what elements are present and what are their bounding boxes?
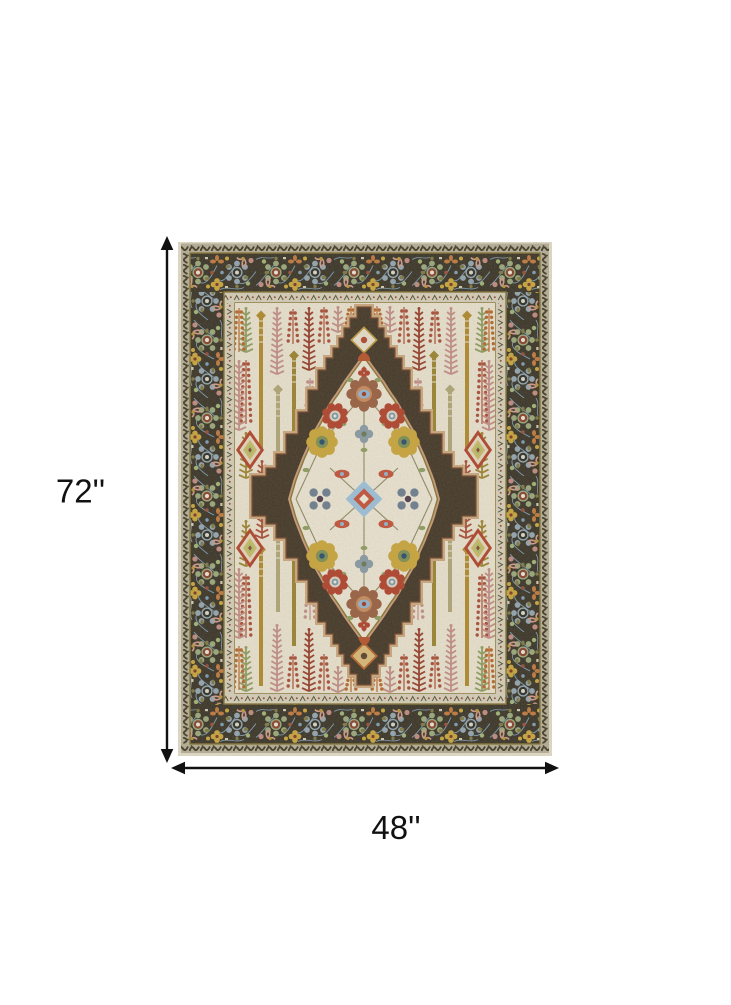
svg-text:72'': 72'' [56, 473, 105, 510]
svg-text:48'': 48'' [371, 809, 420, 846]
